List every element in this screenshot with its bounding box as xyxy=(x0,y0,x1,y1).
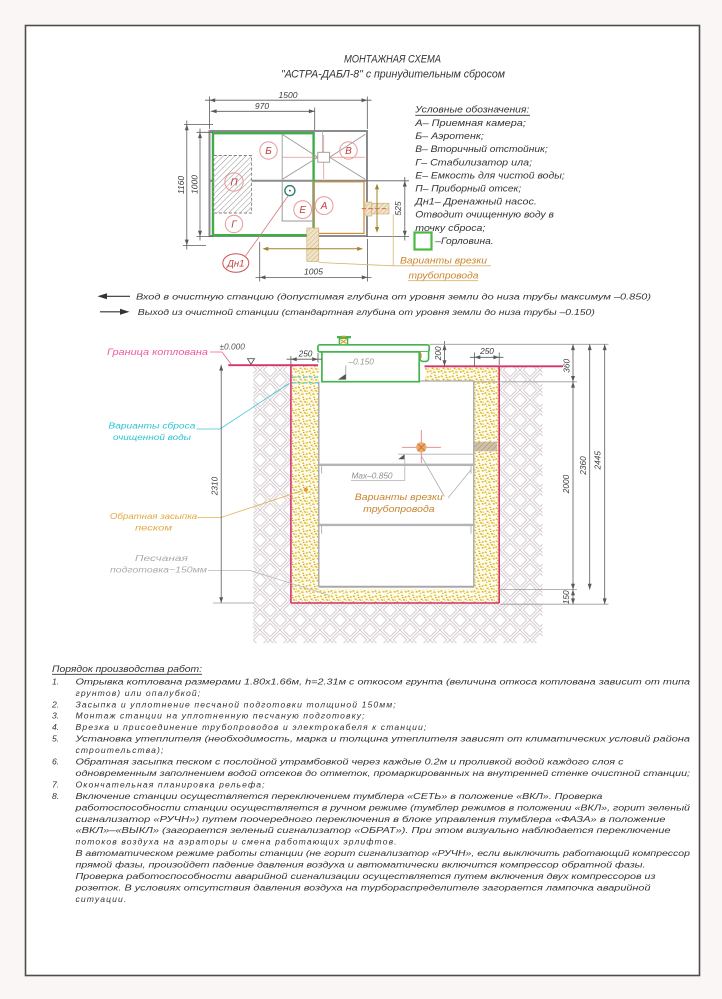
svg-text:«ВКЛ»–«ВЫКЛ» (загорается зелен: «ВКЛ»–«ВЫКЛ» (загорается зеленый сигнали… xyxy=(76,825,671,835)
svg-text:Граница котлована: Граница котлована xyxy=(107,347,208,357)
svg-text:потоков воздуха на аэраторы и: потоков воздуха на аэраторы и смена рабо… xyxy=(76,837,398,847)
svg-text:–Горловина.: –Горловина. xyxy=(434,236,493,247)
svg-text:Е– Емкость для чистой воды;: Е– Емкость для чистой воды; xyxy=(415,170,565,181)
svg-text:Б: Б xyxy=(265,146,272,157)
svg-text:работоспособности станции осущ: работоспособности станции осуществляется… xyxy=(74,802,690,812)
svg-text:Окончательная планировка релье: Окончательная планировка рельефа; xyxy=(76,779,266,789)
svg-text:Max–0.850: Max–0.850 xyxy=(352,470,393,480)
svg-text:2000: 2000 xyxy=(561,474,571,494)
svg-text:Дн1– Дренажный насос.: Дн1– Дренажный насос. xyxy=(414,197,537,208)
svg-text:П: П xyxy=(230,178,238,189)
svg-text:Включение станции осуществляет: Включение станции осуществляется переклю… xyxy=(76,791,603,801)
svg-text:2360: 2360 xyxy=(578,456,588,476)
svg-text:5.: 5. xyxy=(52,734,59,744)
svg-text:А– Приемная камера;: А– Приемная камера; xyxy=(414,118,526,129)
svg-text:1500: 1500 xyxy=(279,90,298,100)
svg-text:"АСТРА-ДАБЛ-8" с принудительны: "АСТРА-ДАБЛ-8" с принудительным сбросом xyxy=(281,69,505,81)
svg-text:трубопровода: трубопровода xyxy=(409,270,479,281)
svg-text:Б– Аэротенк;: Б– Аэротенк; xyxy=(415,131,484,142)
svg-text:ситуации.: ситуации. xyxy=(76,894,128,904)
svg-text:Варианты врезки: Варианты врезки xyxy=(400,255,488,266)
svg-text:Е: Е xyxy=(299,205,306,216)
svg-text:525: 525 xyxy=(393,201,403,215)
svg-text:150: 150 xyxy=(561,590,571,604)
svg-text:2445: 2445 xyxy=(593,451,603,471)
svg-text:Монтаж станции на уплотненную: Монтаж станции на уплотненную песчаную п… xyxy=(76,711,366,721)
svg-text:Вход в очистную станцию (допус: Вход в очистную станцию (допустимая глуб… xyxy=(136,292,651,302)
svg-text:Врезка и присоединение трубопр: Врезка и присоединение трубопроводов и э… xyxy=(76,722,428,732)
svg-text:1000: 1000 xyxy=(189,175,199,194)
svg-text:Порядок производства работ:: Порядок производства работ: xyxy=(52,664,202,674)
svg-text:Выход из очистной станции (ста: Выход из очистной станции (стандартная г… xyxy=(138,307,595,317)
svg-text:Проверка работоспособности ава: Проверка работоспособности аварийной сиг… xyxy=(76,871,656,881)
svg-text:Г– Стабилизатор ила;: Г– Стабилизатор ила; xyxy=(415,157,532,168)
svg-text:Обратная засыпка: Обратная засыпка xyxy=(110,511,198,521)
svg-text:200: 200 xyxy=(433,346,443,361)
svg-text:1.: 1. xyxy=(52,676,59,686)
svg-text:Условные обозначения:: Условные обозначения: xyxy=(414,105,529,116)
svg-text:строительства);: строительства); xyxy=(76,745,165,755)
svg-text:сигнализатор «РУЧН») путем поо: сигнализатор «РУЧН») путем поочередного … xyxy=(76,814,666,824)
svg-text:песком: песком xyxy=(135,522,172,532)
svg-text:очищенной воды: очищенной воды xyxy=(113,432,192,442)
svg-text:±0.000: ±0.000 xyxy=(220,342,246,352)
svg-text:А: А xyxy=(320,201,328,212)
svg-text:Установка утеплителя (необходи: Установка утеплителя (необходимость, мар… xyxy=(74,734,690,744)
svg-text:250: 250 xyxy=(479,346,494,356)
svg-text:грунтов) или опалубкой;: грунтов) или опалубкой; xyxy=(76,688,202,698)
svg-text:Отрывка котлована размерами 1.: Отрывка котлована размерами 1.80х1.66м, … xyxy=(76,676,691,686)
svg-text:трубопровода: трубопровода xyxy=(363,503,435,514)
svg-text:П– Приборный отсек;: П– Приборный отсек; xyxy=(415,184,521,195)
svg-text:Песчаная: Песчаная xyxy=(135,553,189,563)
svg-text:МОНТАЖНАЯ СХЕМА: МОНТАЖНАЯ СХЕМА xyxy=(344,54,441,66)
svg-text:–0.150: –0.150 xyxy=(348,356,375,366)
svg-text:Варианты сброса: Варианты сброса xyxy=(108,420,195,430)
svg-text:В: В xyxy=(345,146,352,157)
svg-text:1160: 1160 xyxy=(176,176,186,195)
svg-text:2.: 2. xyxy=(51,699,59,709)
svg-text:7.: 7. xyxy=(52,779,59,789)
svg-text:Отводит очищенную воду в: Отводит очищенную воду в xyxy=(415,210,554,221)
svg-text:подготовка~150мм: подготовка~150мм xyxy=(110,565,207,575)
svg-text:250: 250 xyxy=(298,348,313,358)
svg-text:Обратная засыпка песком с посл: Обратная засыпка песком с послойной утра… xyxy=(76,757,625,767)
svg-text:8.: 8. xyxy=(52,791,59,801)
svg-text:Варианты врезки: Варианты врезки xyxy=(355,491,444,502)
svg-text:4.: 4. xyxy=(52,722,59,732)
svg-text:Засыпка и уплотнение песчаной: Засыпка и уплотнение песчаной подготовки… xyxy=(76,699,397,709)
svg-text:970: 970 xyxy=(255,101,269,111)
svg-text:3.: 3. xyxy=(52,711,59,721)
svg-text:прямой фазы, произойдет падени: прямой фазы, произойдет падение давления… xyxy=(76,860,646,870)
svg-text:360: 360 xyxy=(561,358,571,372)
svg-text:В автоматическом режиме работы: В автоматическом режиме работы станции (… xyxy=(76,848,691,858)
svg-text:6.: 6. xyxy=(52,757,59,767)
svg-text:одновременным заполнением водо: одновременным заполнением водой отсеков … xyxy=(76,768,691,778)
svg-text:1005: 1005 xyxy=(304,267,323,277)
svg-text:В– Вторичный отстойник;: В– Вторичный отстойник; xyxy=(415,144,548,155)
svg-text:Дн1: Дн1 xyxy=(226,259,244,270)
svg-text:розеток. В условиях отсутстви: розеток. В условиях отсутствия давления … xyxy=(74,883,651,893)
svg-text:2310: 2310 xyxy=(210,476,220,496)
